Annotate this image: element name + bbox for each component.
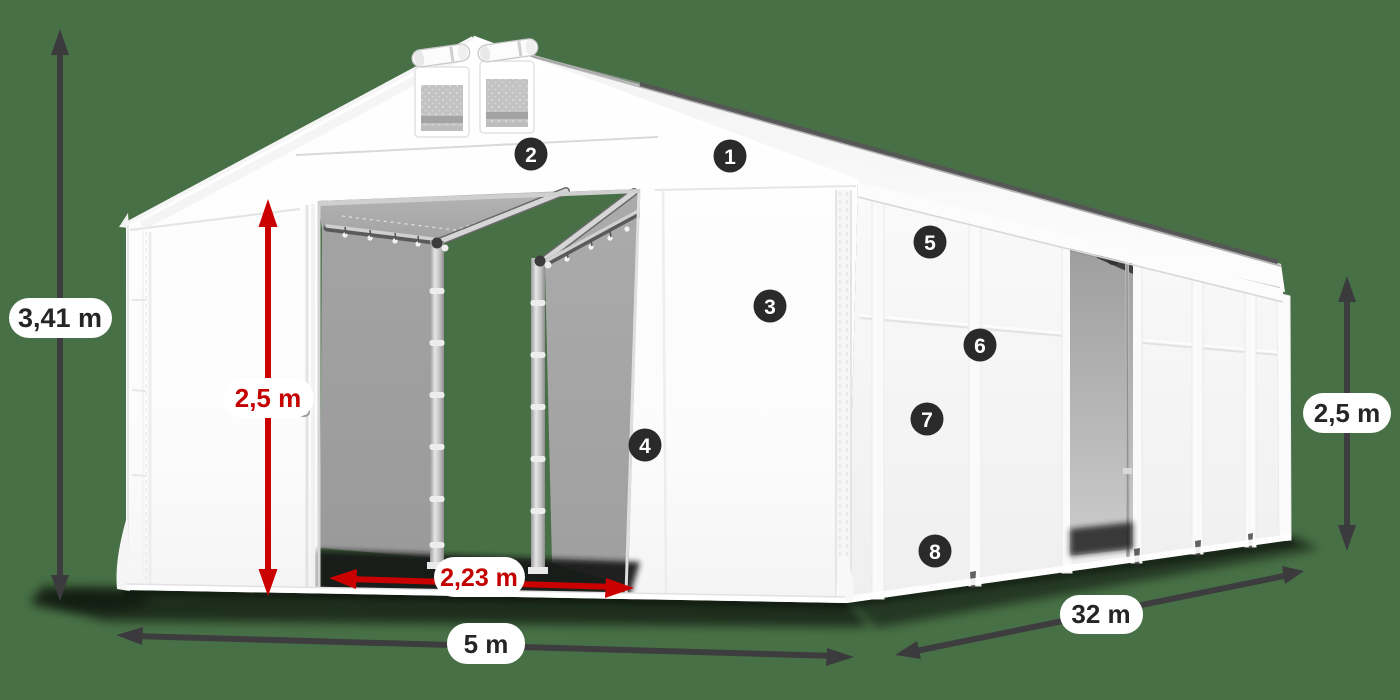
- svg-text:2: 2: [525, 144, 537, 167]
- svg-text:5: 5: [924, 232, 936, 255]
- svg-text:3,41 m: 3,41 m: [18, 303, 102, 333]
- svg-text:7: 7: [921, 409, 933, 432]
- svg-text:4: 4: [639, 435, 651, 458]
- svg-text:2,5 m: 2,5 m: [235, 383, 302, 413]
- svg-text:1: 1: [724, 146, 736, 169]
- svg-text:2,23 m: 2,23 m: [440, 564, 518, 592]
- svg-text:2,5 m: 2,5 m: [1314, 398, 1381, 428]
- svg-text:6: 6: [974, 335, 986, 358]
- svg-text:32 m: 32 m: [1071, 599, 1130, 629]
- svg-text:3: 3: [764, 296, 776, 319]
- svg-text:8: 8: [929, 541, 941, 564]
- svg-text:5 m: 5 m: [464, 629, 509, 659]
